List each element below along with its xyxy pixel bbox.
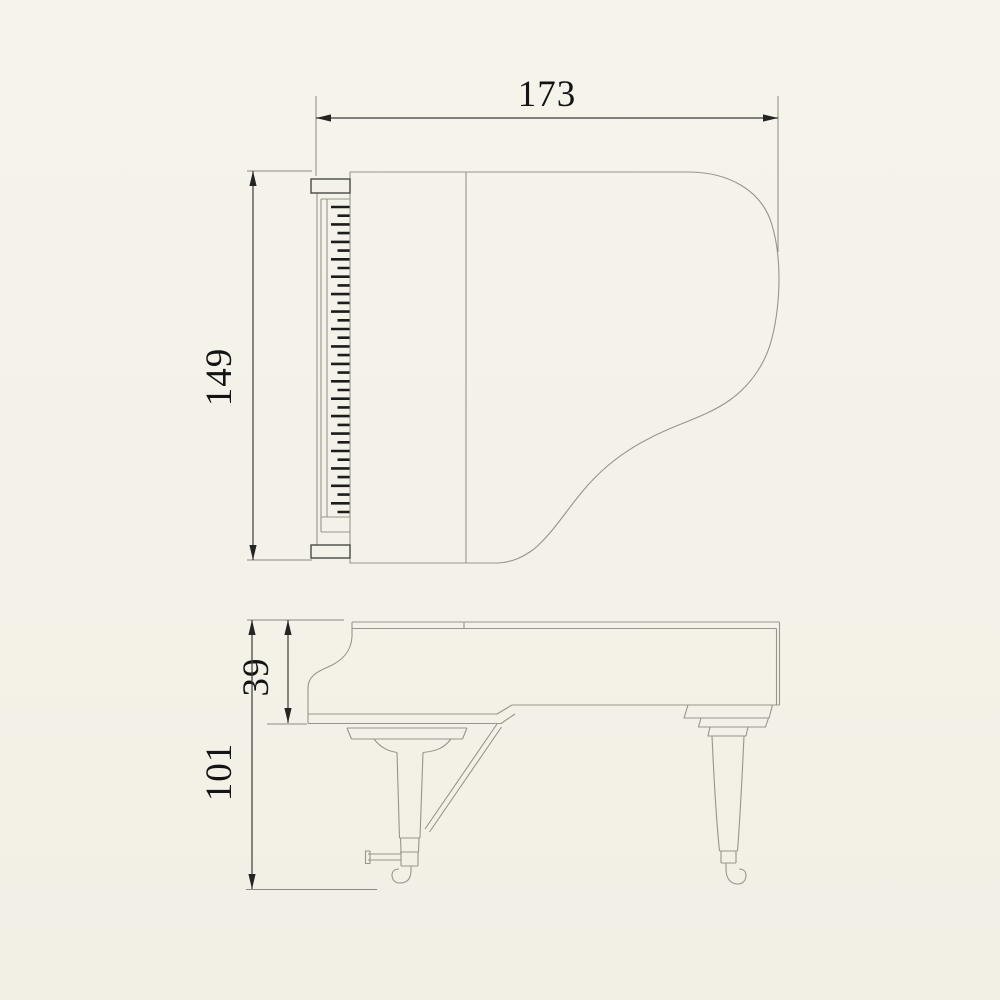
dimension-depth: 149: [199, 171, 312, 560]
tail-edge: [777, 622, 780, 705]
piano-side-view: [308, 622, 780, 884]
keyboard-keys: [331, 207, 350, 512]
arrow-left-icon: [316, 114, 331, 121]
diagram-canvas: 173 149: [0, 0, 1000, 1000]
keybed-top-line: [308, 705, 512, 714]
dimension-depth-label: 149: [199, 348, 240, 407]
arrow-down-icon: [284, 708, 291, 723]
keyblock-bottom: [311, 545, 350, 558]
keyboard-separator-lines: [321, 199, 350, 532]
rear-leg: [712, 736, 744, 863]
rear-molding-step1: [684, 705, 773, 718]
keyblock-top: [311, 179, 350, 193]
piano-top-view: [311, 172, 779, 563]
rear-leg-capital: [708, 727, 748, 736]
arrow-up-icon: [249, 171, 256, 186]
front-leg-flares: [374, 739, 451, 753]
dimension-width: 173: [316, 74, 778, 252]
piano-dimension-drawing: 173 149: [0, 0, 1000, 1000]
arrow-up-icon: [284, 620, 291, 635]
rear-molding-step2: [699, 718, 769, 727]
front-leg-column: [397, 753, 423, 867]
rear-caster-icon: [726, 863, 746, 884]
front-cheek-profile: [308, 622, 352, 724]
pedal: [366, 851, 402, 864]
lyre-brace: [425, 724, 502, 832]
keybed-bottom-line: [308, 714, 515, 724]
piano-body-outline: [350, 172, 779, 563]
arrow-right-icon: [763, 114, 778, 121]
front-caster-icon: [392, 866, 411, 883]
dimension-keyboard-height-label: 39: [236, 658, 277, 697]
arrow-down-icon: [249, 545, 256, 560]
arrow-down-icon: [248, 874, 255, 889]
front-leg-plate: [347, 728, 467, 739]
dimension-overall-height-label: 101: [199, 743, 240, 802]
arrow-up-icon: [248, 620, 255, 635]
dimension-width-label: 173: [518, 74, 577, 115]
keyboard-front-edge-lines: [317, 193, 327, 545]
